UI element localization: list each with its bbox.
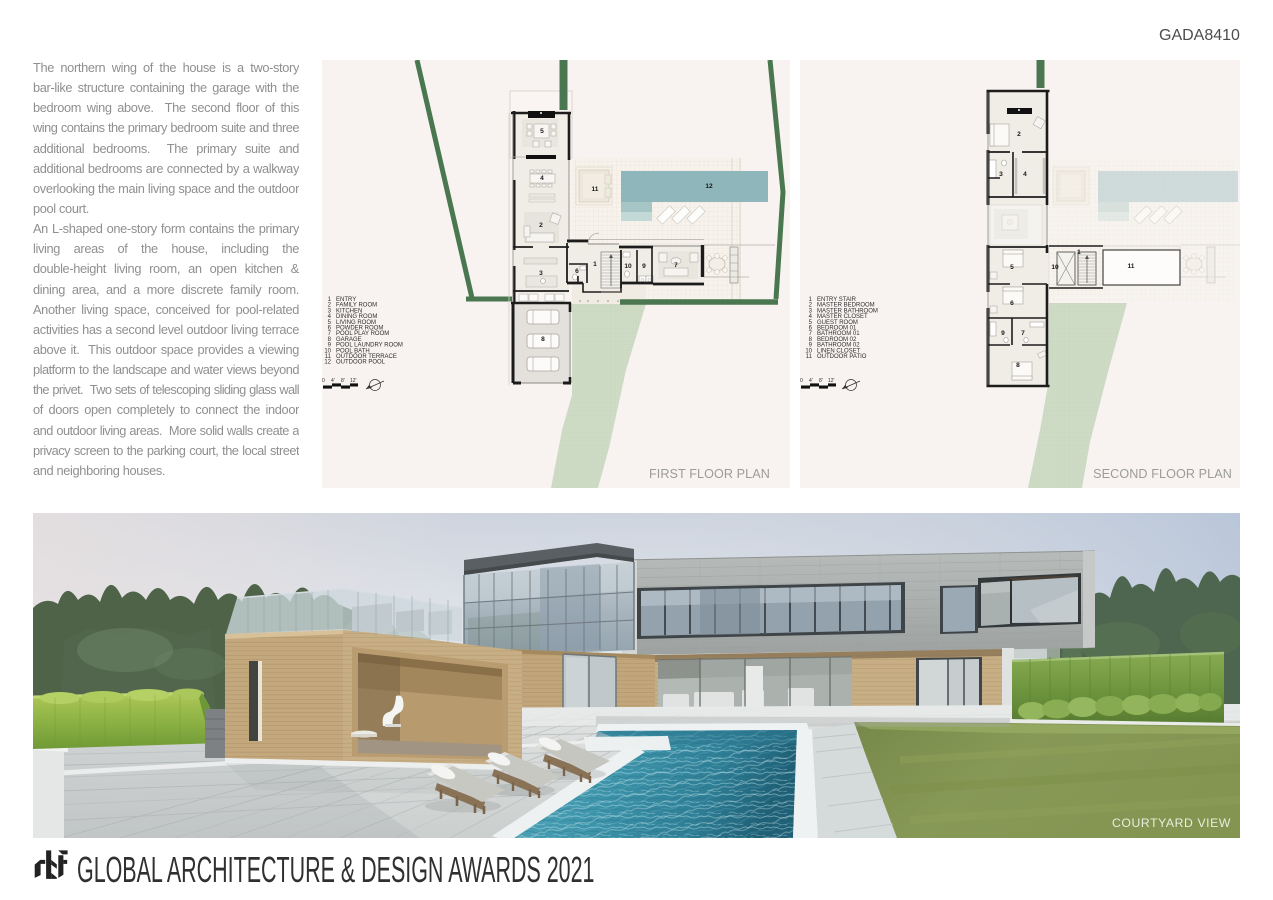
svg-text:9: 9: [642, 263, 646, 270]
svg-text:OUTDOOR POOL: OUTDOOR POOL: [336, 360, 386, 366]
svg-text:4: 4: [540, 175, 544, 182]
svg-text:12: 12: [705, 183, 713, 190]
svg-text:8: 8: [1016, 362, 1020, 369]
svg-text:4': 4': [331, 378, 335, 384]
svg-text:7: 7: [1021, 330, 1025, 337]
svg-text:9: 9: [1001, 330, 1005, 337]
svg-text:1: 1: [1077, 249, 1081, 256]
svg-text:7: 7: [674, 262, 678, 269]
svg-text:2: 2: [539, 222, 543, 229]
svg-text:OUTDOOR PATIO: OUTDOOR PATIO: [817, 354, 867, 360]
svg-text:12': 12': [828, 378, 835, 384]
svg-text:4: 4: [1023, 171, 1027, 178]
svg-text:8': 8': [819, 378, 823, 384]
svg-text:3: 3: [539, 270, 543, 277]
svg-text:FIRST FLOOR PLAN: FIRST FLOOR PLAN: [649, 467, 770, 481]
svg-text:11: 11: [592, 186, 599, 193]
svg-text:11: 11: [806, 354, 813, 360]
svg-text:0: 0: [322, 378, 325, 384]
svg-text:6: 6: [575, 268, 579, 275]
svg-text:2: 2: [1017, 131, 1021, 138]
svg-text:SECOND FLOOR PLAN: SECOND FLOOR PLAN: [1093, 467, 1232, 481]
svg-text:0: 0: [800, 378, 803, 384]
svg-text:11: 11: [1128, 263, 1135, 270]
svg-text:5: 5: [1010, 264, 1014, 271]
svg-text:10: 10: [1051, 264, 1059, 271]
svg-text:10: 10: [624, 263, 632, 270]
svg-text:6: 6: [1010, 300, 1014, 307]
svg-text:12': 12': [350, 378, 357, 384]
svg-text:5: 5: [540, 128, 544, 135]
svg-text:12: 12: [324, 360, 331, 366]
svg-text:8: 8: [541, 336, 545, 343]
svg-text:4': 4': [809, 378, 813, 384]
svg-text:1: 1: [593, 261, 597, 268]
svg-text:COURTYARD VIEW: COURTYARD VIEW: [1112, 816, 1231, 830]
svg-text:3: 3: [999, 171, 1003, 178]
svg-text:8': 8': [341, 378, 345, 384]
